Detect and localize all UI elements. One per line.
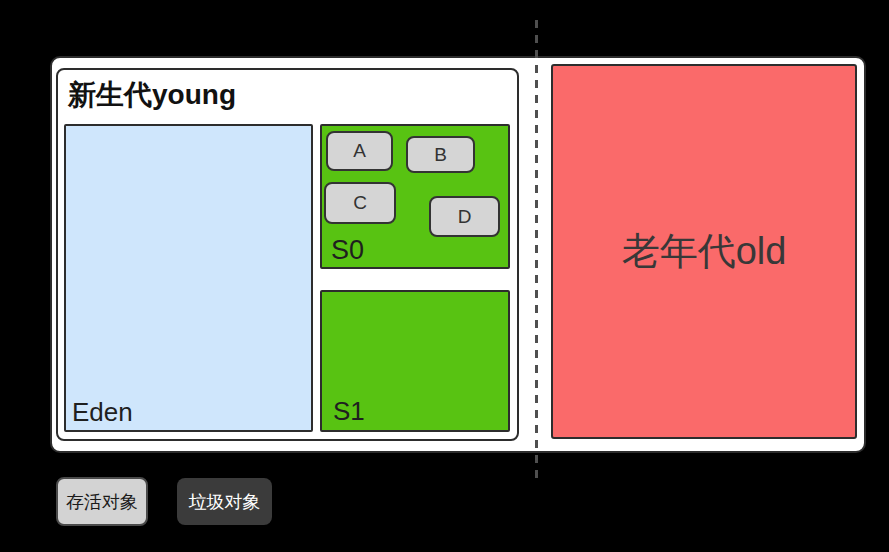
legend-live-label: 存活对象 (66, 490, 138, 514)
object-d: D (429, 196, 500, 237)
s1-label: S1 (333, 398, 365, 424)
object-a: A (326, 131, 393, 171)
old-generation-label: 老年代old (622, 226, 787, 277)
old-generation-box: 老年代old (551, 64, 857, 439)
legend-garbage-label: 垃圾对象 (189, 490, 261, 514)
young-generation-box: 新生代young Eden A B C D S0 S1 (56, 68, 519, 441)
object-b: B (406, 136, 475, 173)
legend-live-object: 存活对象 (56, 477, 148, 526)
young-generation-title: 新生代young (68, 78, 236, 112)
s1-survivor-region: S1 (320, 290, 510, 432)
generation-divider-dashed-line (535, 20, 538, 483)
eden-region: Eden (64, 124, 313, 432)
eden-label: Eden (72, 399, 133, 425)
s0-label: S0 (331, 237, 364, 264)
jvm-heap-diagram: 新生代young Eden A B C D S0 S1 老年代old 存活对象 … (0, 0, 889, 552)
object-c: C (324, 182, 396, 224)
heap-frame: 新生代young Eden A B C D S0 S1 老年代old (50, 56, 866, 453)
legend-garbage-object: 垃圾对象 (177, 478, 272, 525)
s0-survivor-region: A B C D S0 (320, 124, 510, 269)
